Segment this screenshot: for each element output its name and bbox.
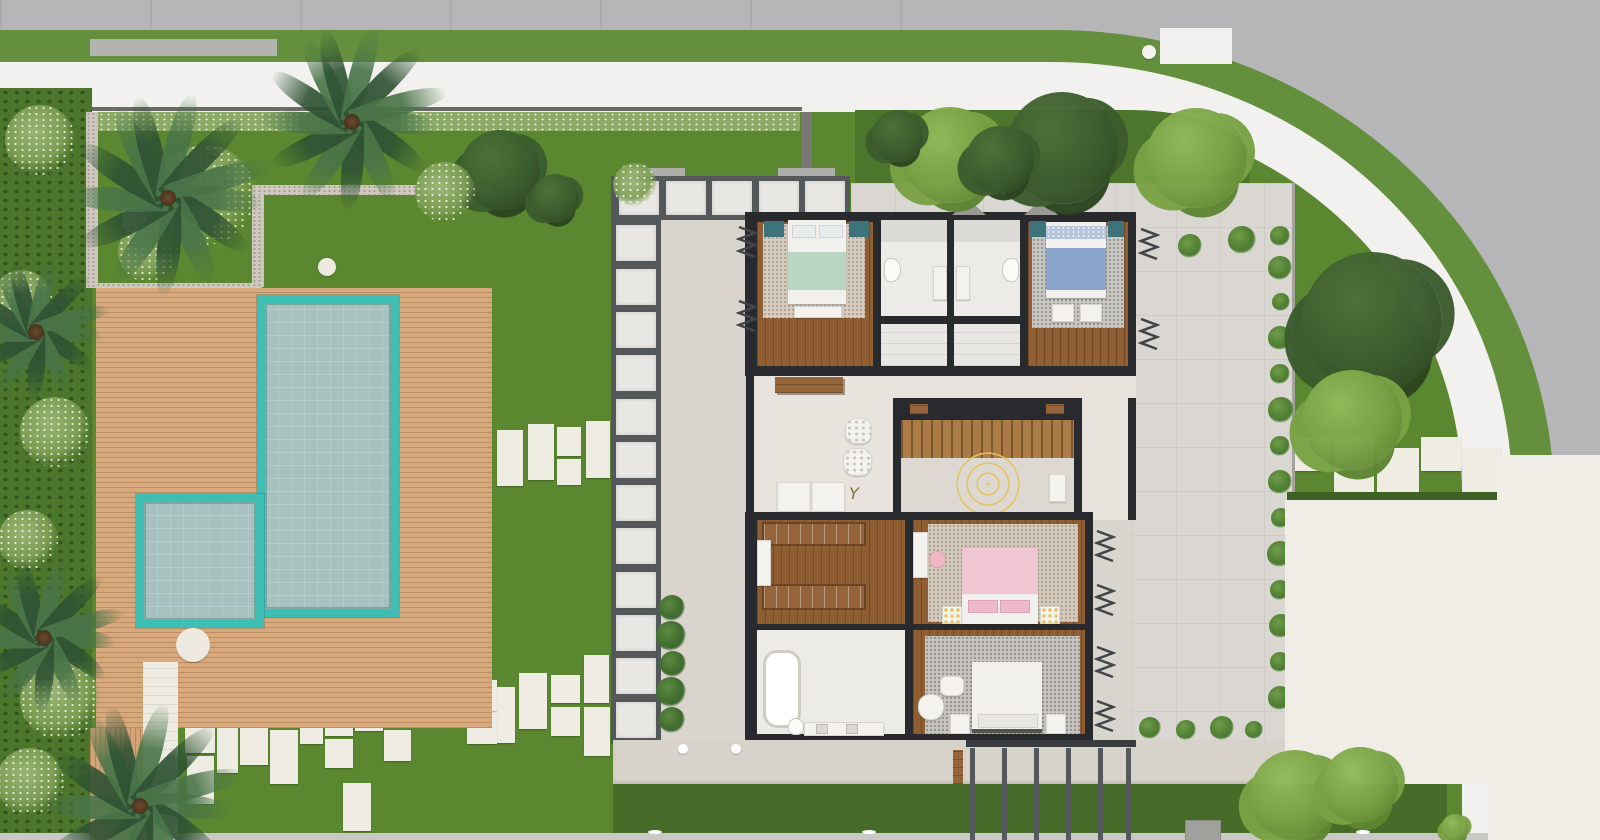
shrub bbox=[1139, 717, 1161, 739]
nightstand-teal bbox=[764, 221, 784, 237]
planter-shrub bbox=[656, 621, 686, 651]
ottoman bbox=[1080, 304, 1102, 322]
louver-door-icon bbox=[1094, 530, 1116, 564]
louver-door-icon bbox=[1094, 700, 1116, 734]
wardrobe-row bbox=[762, 584, 866, 610]
manhole bbox=[1142, 45, 1156, 59]
palm-tree bbox=[0, 240, 128, 424]
palm-trunk bbox=[28, 324, 44, 340]
nightstand bbox=[1040, 606, 1060, 624]
shrub bbox=[1268, 326, 1292, 350]
nightstand-teal bbox=[849, 221, 869, 237]
bed-pink-pillow bbox=[1000, 600, 1030, 613]
lounge-chair bbox=[843, 448, 872, 476]
stepping-stone bbox=[270, 730, 298, 784]
bed-bench bbox=[794, 306, 842, 318]
palm-trunk bbox=[344, 114, 360, 130]
entry-pergola-post bbox=[1066, 748, 1071, 840]
tree bbox=[1146, 108, 1246, 208]
vanity-1 bbox=[933, 266, 947, 300]
vanity-2 bbox=[956, 266, 970, 300]
stair-bench bbox=[1046, 404, 1064, 414]
armchair bbox=[918, 694, 944, 720]
bed-white-headboard bbox=[972, 729, 1042, 733]
stepping-stone bbox=[384, 730, 411, 761]
entry-pergola-post bbox=[1126, 748, 1131, 840]
living-right-wall bbox=[1128, 398, 1136, 520]
sprinkler-mark bbox=[862, 830, 876, 834]
shrub bbox=[1268, 256, 1292, 280]
planter-shrub bbox=[656, 677, 686, 707]
spa-pool bbox=[136, 494, 264, 628]
louver-door-icon bbox=[736, 226, 758, 260]
louver-door-icon bbox=[1138, 318, 1160, 352]
pergola-panel bbox=[666, 181, 706, 215]
stepping-stone bbox=[551, 707, 580, 736]
pergola-panel bbox=[616, 442, 656, 478]
stepping-stone bbox=[343, 783, 371, 831]
stepping-stone bbox=[586, 421, 610, 478]
toilet-2 bbox=[1002, 258, 1019, 282]
deck-round-stone bbox=[176, 628, 210, 662]
bed-pink-pillow bbox=[968, 600, 998, 613]
stepping-stone bbox=[551, 675, 580, 703]
pergola-panel bbox=[616, 485, 656, 521]
sprinkler-mark bbox=[648, 830, 662, 834]
lounge-chair bbox=[845, 418, 872, 444]
sprinkler-mark bbox=[1356, 830, 1370, 834]
pergola-panel bbox=[616, 269, 656, 305]
palm-tree bbox=[234, 4, 470, 240]
tree bbox=[531, 174, 579, 222]
entry-pergola-post bbox=[970, 748, 975, 840]
closet-cabinet bbox=[757, 540, 771, 586]
shower-1 bbox=[881, 220, 947, 242]
side-table: Y bbox=[849, 484, 863, 498]
round-rug-yellow bbox=[951, 447, 1025, 521]
nightstand-teal bbox=[1030, 221, 1046, 237]
bed-blue-pillows bbox=[1046, 226, 1106, 239]
palm-trunk bbox=[132, 798, 148, 814]
sideboard bbox=[775, 377, 843, 393]
toilet-1 bbox=[884, 258, 901, 282]
toilet-master bbox=[788, 718, 804, 735]
tree bbox=[966, 126, 1034, 194]
nightstand bbox=[950, 714, 970, 734]
bed-green-blanket bbox=[788, 252, 846, 290]
site-plan: Y bbox=[0, 0, 1600, 840]
shrub bbox=[1228, 226, 1256, 254]
pergola-cap bbox=[778, 168, 835, 176]
louver-door-icon bbox=[1094, 646, 1116, 680]
pergola-panel bbox=[616, 528, 656, 564]
pergola-panel bbox=[805, 181, 845, 215]
nightstand bbox=[942, 606, 962, 624]
shrub bbox=[1272, 293, 1290, 311]
pergola-panel bbox=[616, 702, 656, 738]
shower-2 bbox=[954, 220, 1020, 242]
pergola-panel bbox=[616, 312, 656, 348]
shrub bbox=[1268, 470, 1292, 494]
shrub bbox=[1270, 364, 1290, 384]
entry-pergola-beam bbox=[966, 740, 1136, 747]
walkway-bench bbox=[953, 750, 963, 784]
pergola-panel bbox=[616, 225, 656, 261]
tree bbox=[1441, 814, 1469, 840]
pergola-panel bbox=[616, 615, 656, 651]
planter-shrub bbox=[660, 651, 686, 677]
sink bbox=[846, 724, 858, 734]
bed-pink-duvet bbox=[962, 548, 1038, 594]
sink bbox=[816, 724, 828, 734]
louver-door-icon bbox=[1138, 228, 1160, 262]
vanity-chair-pink bbox=[929, 551, 946, 568]
shrub bbox=[1270, 436, 1290, 456]
flowering-bush bbox=[613, 163, 657, 207]
lawn-round-stone bbox=[318, 258, 336, 276]
closet-cell-1 bbox=[881, 324, 947, 366]
palm-trunk bbox=[36, 630, 52, 646]
shrub bbox=[1178, 234, 1202, 258]
louver-door-icon bbox=[1094, 584, 1116, 618]
walkway-light bbox=[731, 744, 741, 754]
palm-trunk bbox=[160, 190, 176, 206]
louver-door-icon bbox=[736, 300, 758, 334]
entry-pergola-post bbox=[1002, 748, 1007, 840]
nightstand-teal bbox=[1108, 221, 1124, 237]
paver-slab bbox=[1463, 448, 1501, 492]
stair-bench bbox=[910, 404, 928, 414]
tree bbox=[872, 110, 924, 162]
utility-box bbox=[1185, 820, 1221, 840]
pergola-panel bbox=[616, 355, 656, 391]
tree bbox=[1302, 370, 1402, 470]
tree bbox=[1322, 747, 1398, 823]
pergola-panel bbox=[759, 181, 799, 215]
sofa bbox=[777, 482, 845, 512]
driveway-east bbox=[1497, 455, 1600, 784]
pergola-panel bbox=[616, 572, 656, 608]
palm-tree bbox=[12, 678, 268, 840]
driveway-corner bbox=[1488, 782, 1600, 840]
stepping-stone bbox=[325, 739, 353, 768]
vanity-desk bbox=[913, 532, 928, 578]
south-walkway bbox=[613, 740, 1290, 784]
entry-pergola-post bbox=[1098, 748, 1103, 840]
stepping-stone bbox=[557, 427, 581, 456]
pergola-panel bbox=[616, 658, 656, 694]
bed-white-pillows bbox=[978, 714, 1038, 728]
wardrobe-row bbox=[762, 522, 866, 546]
ottoman bbox=[1052, 304, 1074, 322]
planter-shrub bbox=[659, 707, 685, 733]
stepping-stone bbox=[519, 673, 547, 729]
closet-cell-2 bbox=[954, 324, 1020, 366]
pergola-panel bbox=[616, 399, 656, 435]
shrub bbox=[1245, 721, 1263, 739]
nightstand bbox=[1046, 714, 1066, 734]
tree bbox=[1302, 252, 1442, 392]
stepping-stone bbox=[584, 655, 609, 703]
paver-slab bbox=[1421, 437, 1461, 471]
driveway-connector bbox=[1160, 28, 1232, 64]
walkway-light bbox=[678, 744, 688, 754]
entry-pergola-post bbox=[1034, 748, 1039, 840]
ottoman bbox=[940, 676, 964, 696]
shrub bbox=[1176, 720, 1196, 740]
shrub bbox=[1268, 397, 1294, 423]
bed-blue-duvet bbox=[1046, 248, 1106, 290]
stepping-stone bbox=[497, 430, 523, 486]
stepping-stone bbox=[528, 424, 554, 480]
hall-chair bbox=[1049, 474, 1066, 502]
bathtub bbox=[763, 650, 801, 728]
shrub bbox=[1210, 716, 1234, 740]
bed-green-pillow bbox=[819, 225, 843, 238]
planter-shrub bbox=[659, 595, 685, 621]
stepping-stone bbox=[584, 707, 610, 756]
living-left-wall bbox=[746, 366, 754, 520]
shrub bbox=[1270, 226, 1290, 246]
stepping-stone bbox=[557, 459, 581, 485]
main-pool bbox=[257, 295, 399, 617]
pergola-panel bbox=[712, 181, 752, 215]
bed-green-pillow bbox=[792, 225, 816, 238]
